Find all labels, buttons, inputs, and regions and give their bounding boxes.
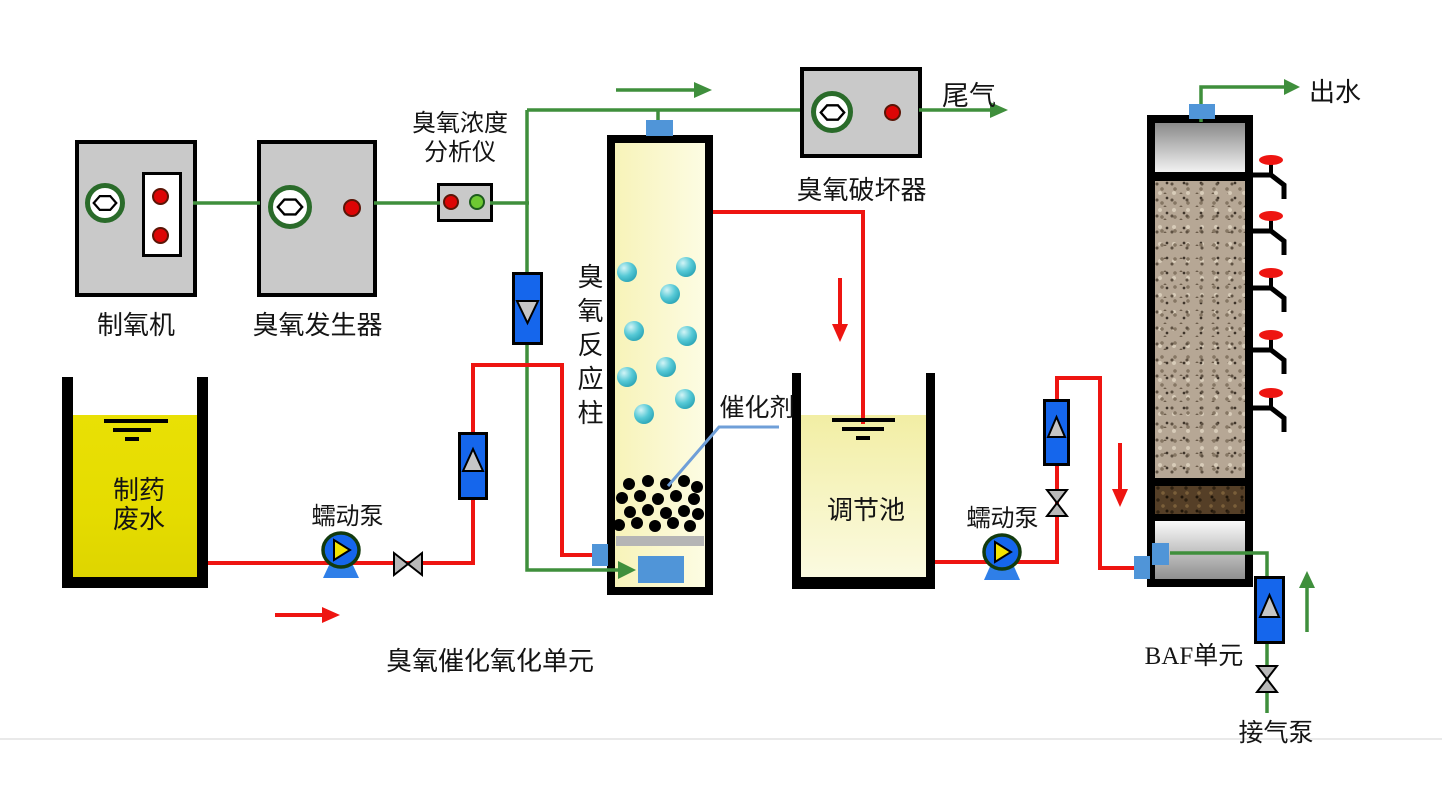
column-top-port bbox=[646, 120, 673, 136]
baf-top-headspace bbox=[1155, 123, 1245, 172]
flowmeter bbox=[1043, 399, 1070, 466]
baf-bottom-plenum bbox=[1155, 521, 1245, 579]
tap-icon bbox=[1253, 211, 1284, 255]
indicator-light-icon bbox=[469, 194, 485, 210]
red-arrowheads bbox=[322, 324, 1128, 623]
indicator-light-icon bbox=[152, 188, 169, 205]
ozone-reaction-column bbox=[607, 135, 713, 595]
peristaltic-pump-icon bbox=[323, 533, 359, 578]
baf-divider bbox=[1155, 172, 1245, 181]
indicator-light-icon bbox=[343, 199, 361, 217]
wastewater-label-line2: 废水 bbox=[100, 505, 178, 534]
float-up-icon bbox=[1257, 579, 1282, 641]
tail-gas-label: 尾气 bbox=[938, 74, 1000, 113]
float-down-icon bbox=[515, 275, 540, 342]
baf-support-layer bbox=[1155, 486, 1245, 514]
wastewater-label: 制药 废水 bbox=[100, 476, 178, 534]
tap-icon bbox=[1253, 155, 1284, 199]
tap-icon bbox=[1253, 330, 1284, 374]
process-flow-diagram: 制氧机 臭氧发生器 臭氧浓度 分析仪 臭氧破坏器 尾气 臭氧反应柱 催化剂 制药… bbox=[0, 0, 1442, 795]
wastewater-label-line1: 制药 bbox=[100, 476, 178, 505]
oxidation-unit-caption: 臭氧催化氧化单元 bbox=[365, 641, 615, 678]
effluent-label: 出水 bbox=[1304, 72, 1366, 109]
reaction-column-label: 臭氧反应柱 bbox=[570, 260, 607, 435]
float-up-icon bbox=[461, 435, 485, 497]
hexagon-icon bbox=[819, 99, 846, 126]
indicator-light-icon bbox=[884, 104, 901, 121]
peristaltic-pump-icon bbox=[984, 535, 1020, 580]
catalyst-label: 催化剂 bbox=[712, 388, 802, 424]
hexagon-icon bbox=[276, 193, 304, 221]
oxygen-generator-panel bbox=[142, 172, 182, 257]
air-pump-label: 接气泵 bbox=[1230, 713, 1322, 749]
baf-unit-caption: BAF单元 bbox=[1138, 636, 1250, 672]
ozone-analyzer-label-line2: 分析仪 bbox=[398, 139, 522, 168]
baf-column bbox=[1147, 115, 1253, 587]
column-inlet-port bbox=[592, 544, 608, 566]
indicator-light-icon bbox=[443, 194, 459, 210]
ozone-analyzer-label-line1: 臭氧浓度 bbox=[398, 110, 522, 139]
oxygen-generator-dial-icon bbox=[85, 183, 125, 223]
regulation-tank bbox=[792, 373, 935, 589]
divider-line bbox=[0, 738, 1442, 740]
tap-icon bbox=[1253, 388, 1284, 432]
baf-filter-media bbox=[1155, 181, 1245, 478]
transfer-pump-label: 蠕动泵 bbox=[955, 498, 1050, 533]
indicator-light-icon bbox=[152, 227, 169, 244]
flowmeter bbox=[512, 272, 543, 345]
sampling-taps bbox=[1253, 155, 1284, 432]
tap-icon bbox=[1253, 268, 1284, 312]
hexagon-icon bbox=[92, 190, 118, 216]
ozone-analyzer-label: 臭氧浓度 分析仪 bbox=[398, 110, 522, 168]
float-up-icon bbox=[1046, 402, 1067, 463]
ozone-destructor-label: 臭氧破坏器 bbox=[794, 170, 929, 207]
ozone-generator-label: 臭氧发生器 bbox=[245, 305, 390, 342]
ozone-destructor-dial-icon bbox=[811, 91, 853, 133]
baf-divider bbox=[1155, 478, 1245, 486]
ozone-generator-dial-icon bbox=[268, 185, 312, 229]
flowmeter bbox=[458, 432, 488, 500]
flowmeter bbox=[1254, 576, 1285, 644]
oxygen-generator-label: 制氧机 bbox=[75, 305, 197, 342]
regulation-tank-label: 调节池 bbox=[810, 490, 922, 527]
feed-pump-label: 蠕动泵 bbox=[300, 496, 395, 531]
baf-divider bbox=[1155, 514, 1245, 521]
